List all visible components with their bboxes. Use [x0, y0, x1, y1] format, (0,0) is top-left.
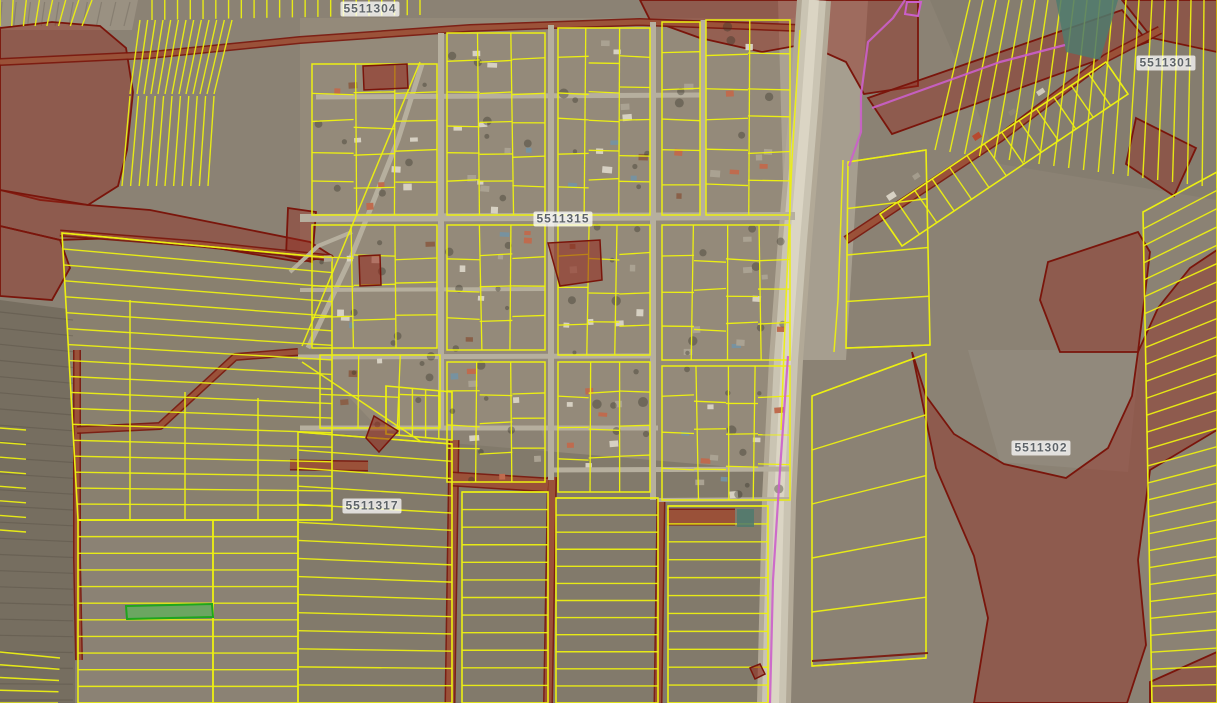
map-canvas[interactable]: [0, 0, 1217, 703]
selected-parcel[interactable]: [126, 604, 213, 619]
map-viewport[interactable]: 55113045511315551131755113015511302: [0, 0, 1217, 703]
selected-parcel-layer: [126, 604, 213, 619]
